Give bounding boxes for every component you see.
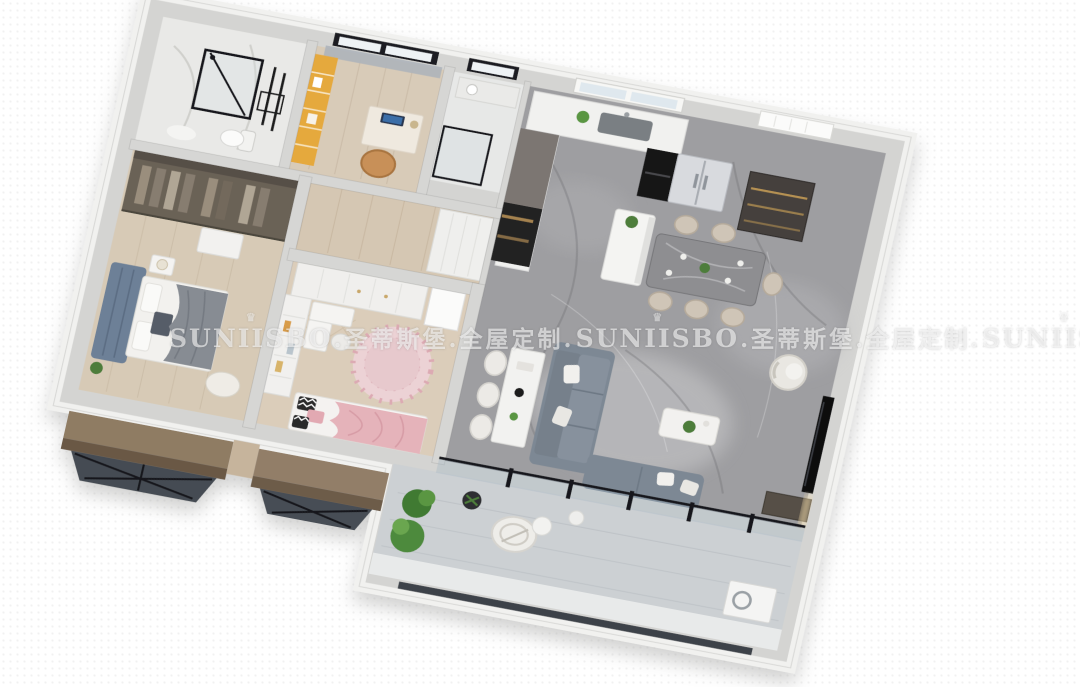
sofa-pillow (564, 365, 580, 384)
display-cabinet (737, 171, 815, 241)
refrigerator (668, 154, 733, 212)
shower-2 (433, 126, 492, 185)
nightstand (149, 255, 176, 276)
floorplan-render: ♛ SUNIISBO .圣蒂斯堡.全屋定制. ♛ SUNIISBO .圣蒂斯堡.… (0, 0, 1080, 687)
room-kids-bedroom (256, 261, 470, 456)
apartment-3d-floorplan (0, 0, 1080, 687)
shower-enclosure (192, 50, 262, 119)
